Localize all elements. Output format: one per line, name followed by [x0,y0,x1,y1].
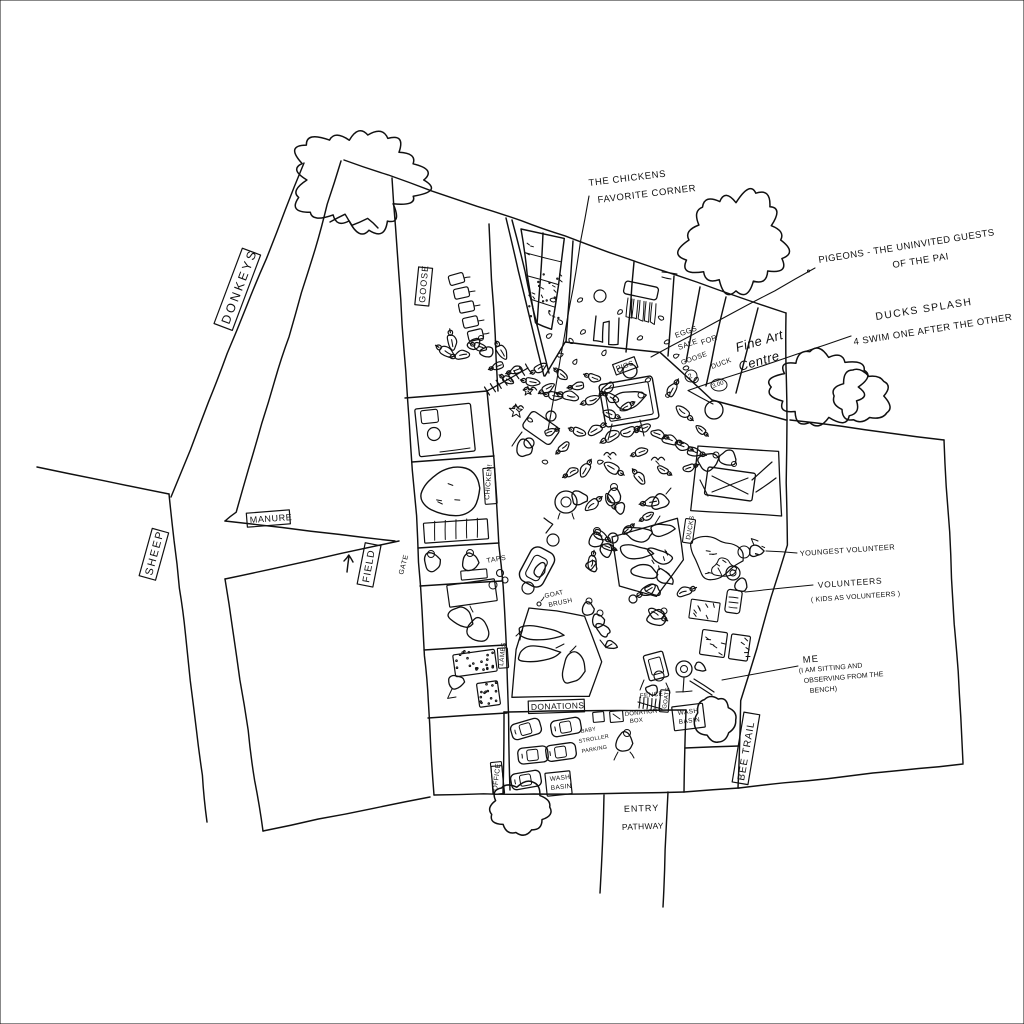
svg-text:THE CHICKENS: THE CHICKENS [588,169,667,189]
svg-text:BENCH): BENCH) [810,686,838,695]
svg-text:BRUSH: BRUSH [548,597,573,609]
svg-text:PATHWAY: PATHWAY [622,821,664,832]
svg-text:MANURE: MANURE [249,512,292,525]
svg-text:ME: ME [802,654,819,666]
svg-text:ENTRY: ENTRY [624,803,660,814]
svg-text:DUCKS SPLASH: DUCKS SPLASH [875,296,974,323]
svg-text:DUCK: DUCK [710,357,732,371]
svg-text:DONATIONS: DONATIONS [531,700,585,712]
svg-text:FAVORITE CORNER: FAVORITE CORNER [597,183,697,206]
svg-text:OF THE PAI: OF THE PAI [892,251,950,271]
svg-text:YOUNGEST VOLUNTEER: YOUNGEST VOLUNTEER [800,542,896,558]
svg-text:GATE: GATE [398,554,410,576]
svg-text:TAPS: TAPS [486,555,507,565]
svg-text:( KIDS AS VOLUNTEERS ): ( KIDS AS VOLUNTEERS ) [811,591,901,604]
svg-text:GOOSE: GOOSE [417,264,430,303]
svg-text:BOX: BOX [630,718,644,725]
svg-text:PARKING: PARKING [581,745,607,755]
svg-text:WASH: WASH [549,774,570,783]
svg-text:CHICKEN!: CHICKEN! [484,464,494,500]
svg-text:Fine Art: Fine Art [734,327,786,355]
svg-text:BASIN: BASIN [678,716,700,726]
svg-text:VOLUNTEERS: VOLUNTEERS [817,576,882,590]
svg-text:BASIN: BASIN [550,783,572,792]
svg-text:2: 2 [687,373,693,381]
svg-text:BABY: BABY [580,726,596,735]
svg-text:OFFICE: OFFICE [492,763,502,791]
svg-text:FOR: FOR [700,333,719,347]
svg-text:STROLLER: STROLLER [578,734,609,745]
svg-text:GOOSE: GOOSE [680,351,708,367]
